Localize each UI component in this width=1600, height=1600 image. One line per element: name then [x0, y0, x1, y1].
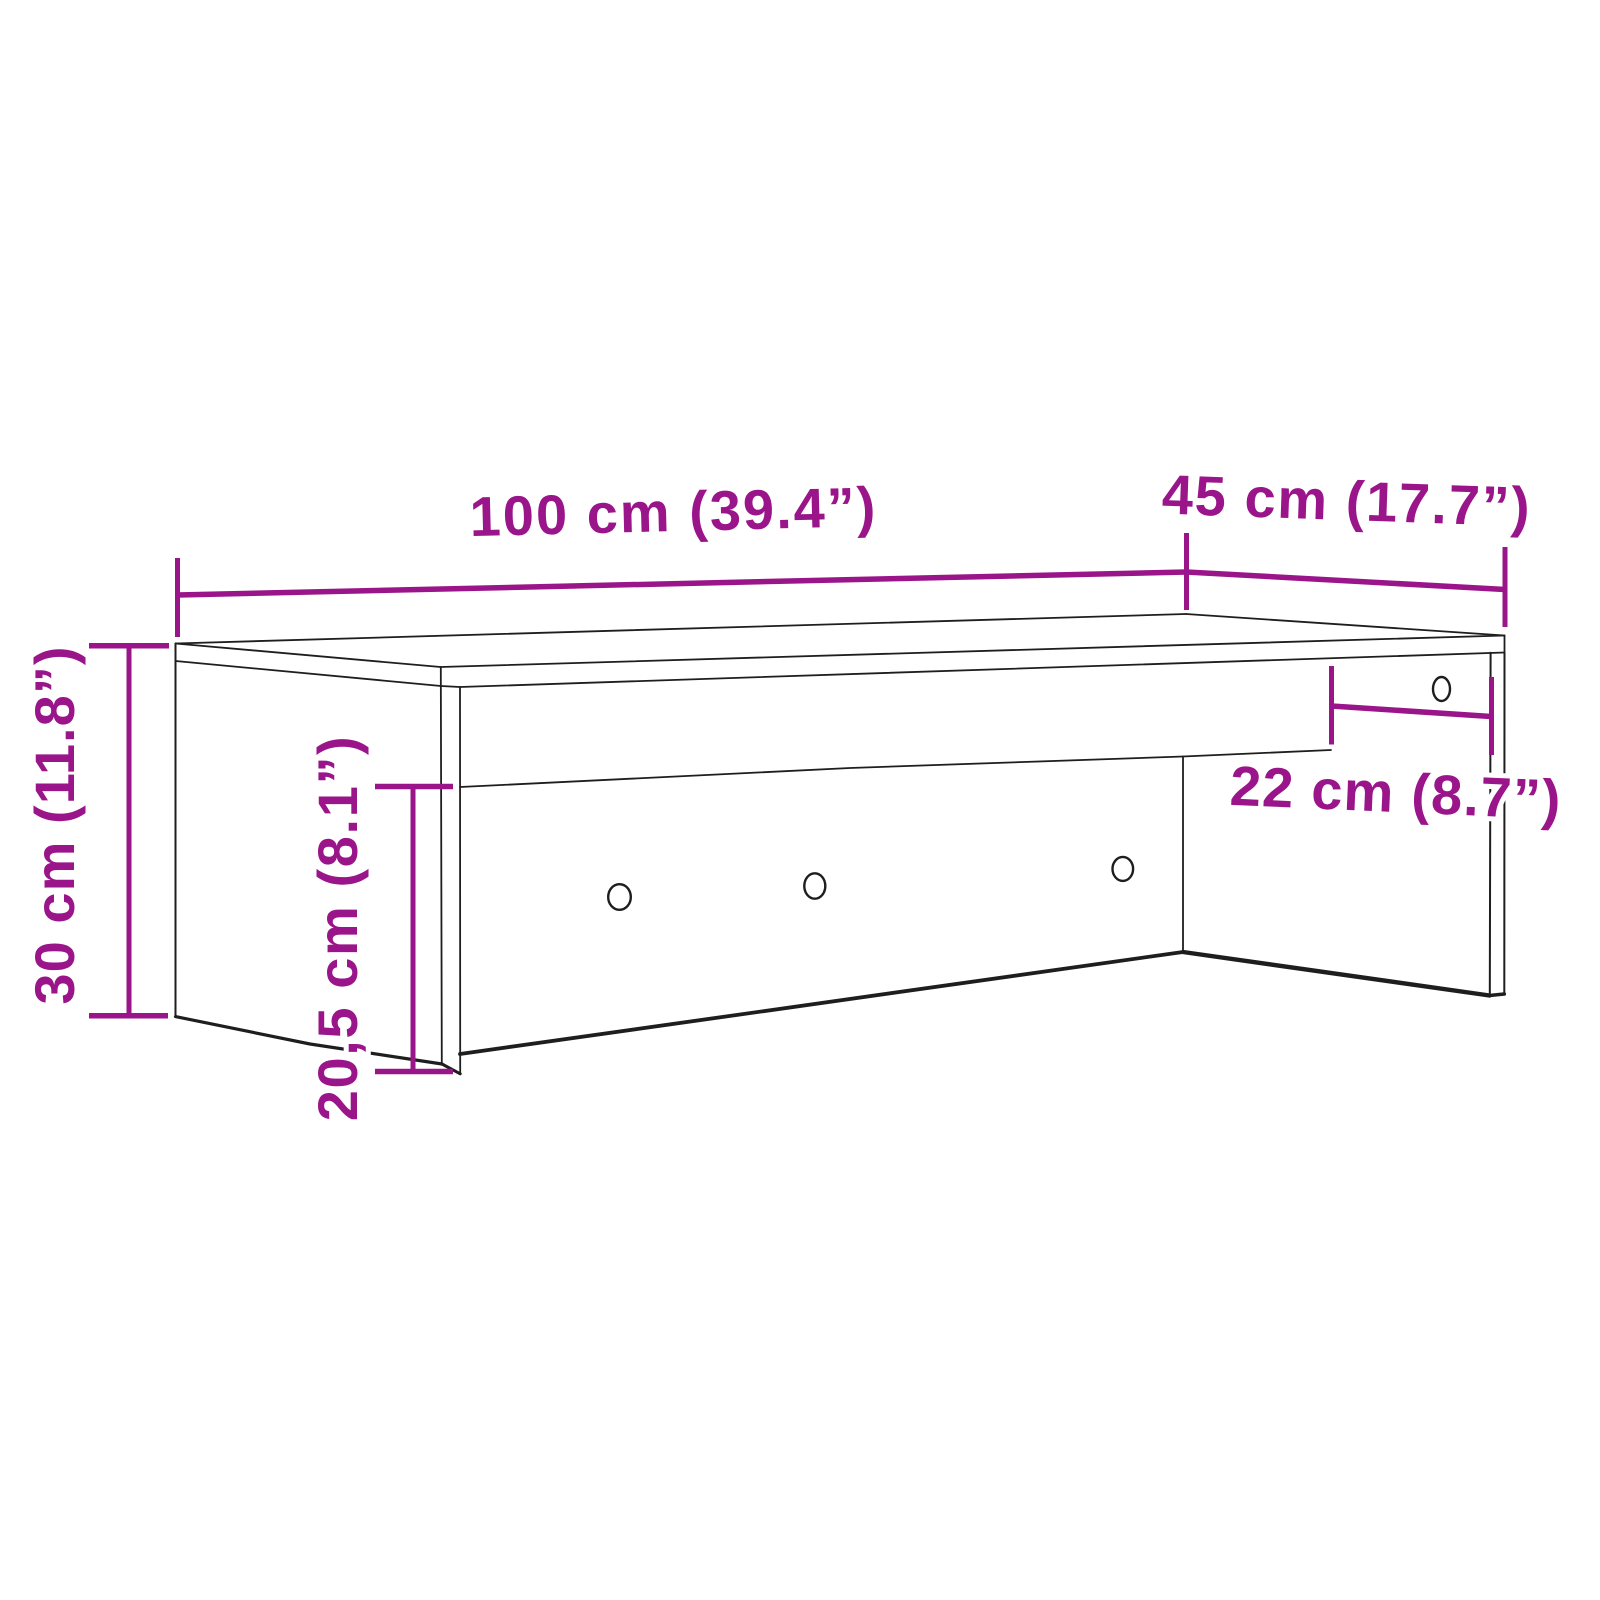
svg-text:20,5 cm (8.1”): 20,5 cm (8.1”) — [306, 735, 369, 1122]
svg-text:100 cm (39.4”): 100 cm (39.4”) — [469, 475, 878, 548]
svg-text:30 cm (11.8”): 30 cm (11.8”) — [23, 645, 86, 1004]
svg-text:45 cm (17.7”): 45 cm (17.7”) — [1161, 463, 1532, 539]
